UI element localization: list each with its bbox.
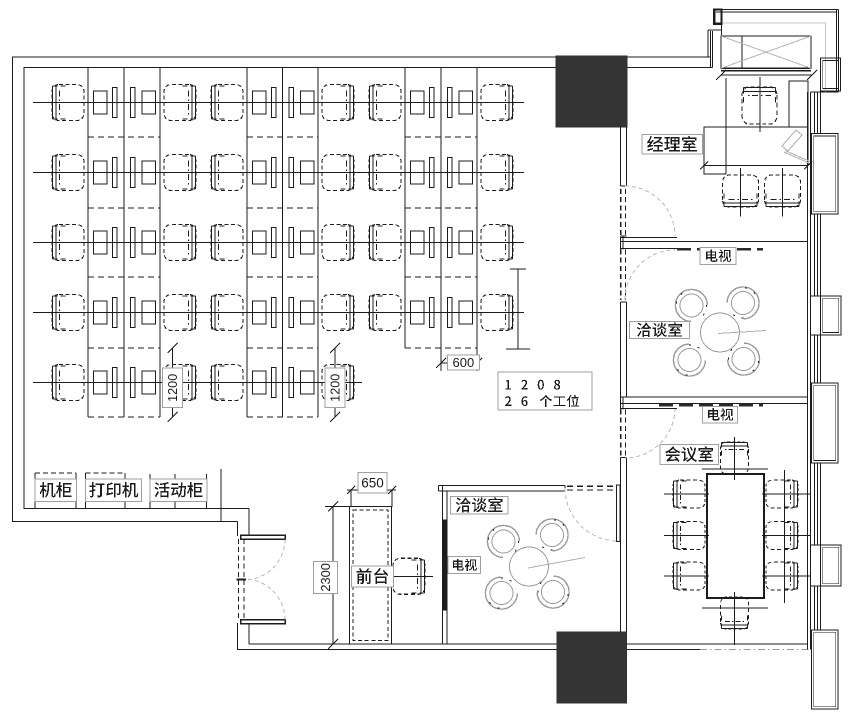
svg-text:2300: 2300 (318, 563, 333, 591)
svg-text:1200: 1200 (166, 374, 180, 402)
svg-text:1200: 1200 (328, 374, 342, 402)
svg-text:600: 600 (452, 355, 474, 370)
svg-text:650: 650 (361, 475, 384, 490)
